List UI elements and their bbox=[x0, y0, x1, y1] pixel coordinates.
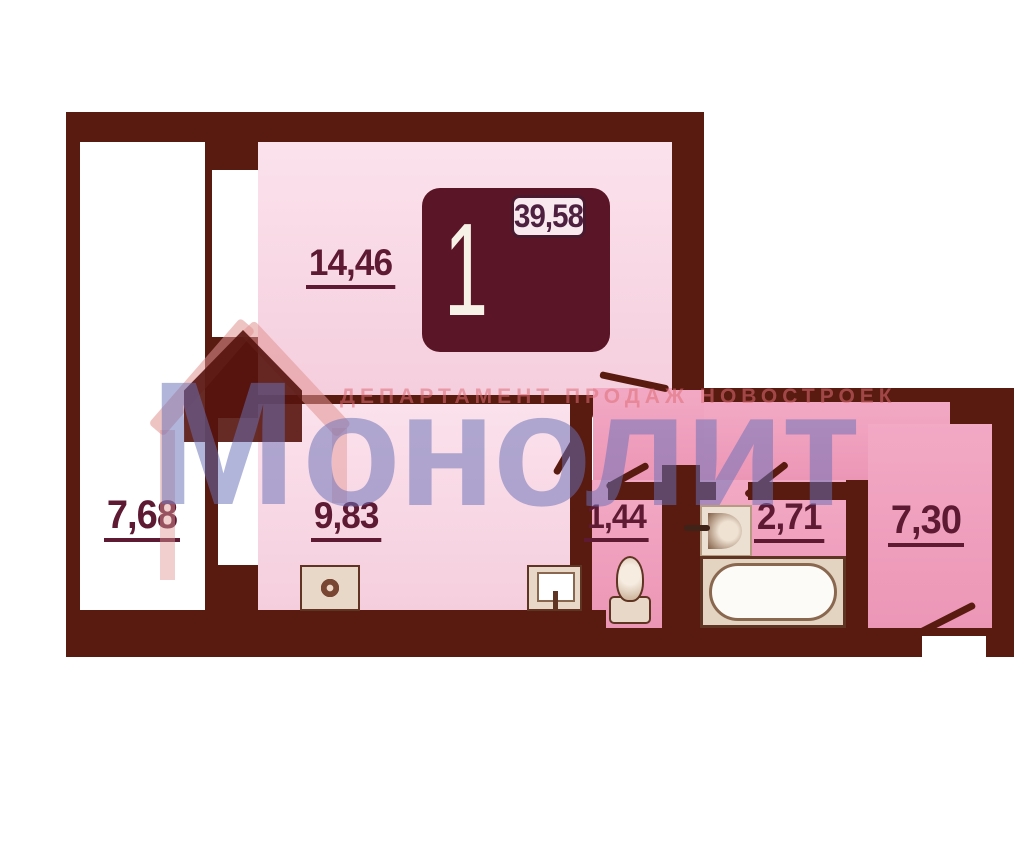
wall-wc-bathroom bbox=[662, 465, 700, 628]
rooms-count: 1 bbox=[441, 190, 491, 350]
hallway-area-label: 7,30 bbox=[888, 499, 964, 547]
wall-bathroom-top bbox=[700, 482, 716, 500]
wall-outer-right bbox=[992, 388, 1014, 657]
stove-burner bbox=[321, 579, 339, 597]
balcony-area-label: 7,68 bbox=[104, 494, 180, 542]
wall-living-right bbox=[672, 112, 704, 390]
washbasin-bowl bbox=[708, 513, 742, 549]
wall-outer-left bbox=[66, 112, 80, 640]
kitchen-sink-icon bbox=[527, 565, 582, 611]
full-area-value: 39,58 bbox=[511, 195, 586, 238]
balcony-window bbox=[212, 170, 258, 337]
entrance-opening bbox=[922, 636, 986, 657]
wc-area-label: 1,44 bbox=[584, 500, 649, 542]
sink-tap bbox=[553, 591, 558, 609]
washbasin-icon bbox=[700, 505, 752, 557]
bathtub-icon bbox=[700, 556, 846, 628]
toilet-bowl bbox=[616, 556, 644, 602]
wall-living-kitchen bbox=[257, 395, 577, 404]
area-list: 14,46 35,74 39,58 bbox=[508, 190, 608, 350]
wall-outer-top bbox=[78, 112, 704, 142]
wall-hallway-top bbox=[704, 388, 997, 402]
floor-plan: 14,46 7,68 9,83 1,44 2,71 7,30 1 14,46 3… bbox=[0, 0, 1024, 841]
bathroom-area-label: 2,71 bbox=[754, 498, 824, 543]
kitchen-area-label: 9,83 bbox=[311, 497, 381, 542]
wall-bathroom-hallway bbox=[846, 480, 868, 630]
washbasin-tap bbox=[684, 525, 710, 531]
wall-hallway-notch bbox=[950, 402, 997, 424]
wall-outer-bottom bbox=[66, 610, 606, 657]
unit-info-badge: 1 14,46 35,74 39,58 bbox=[424, 190, 608, 350]
stove-icon bbox=[300, 565, 360, 611]
living-room-area-label: 14,46 bbox=[306, 244, 395, 289]
balcony-door-opening bbox=[218, 418, 258, 565]
bathtub-inner bbox=[709, 563, 837, 621]
